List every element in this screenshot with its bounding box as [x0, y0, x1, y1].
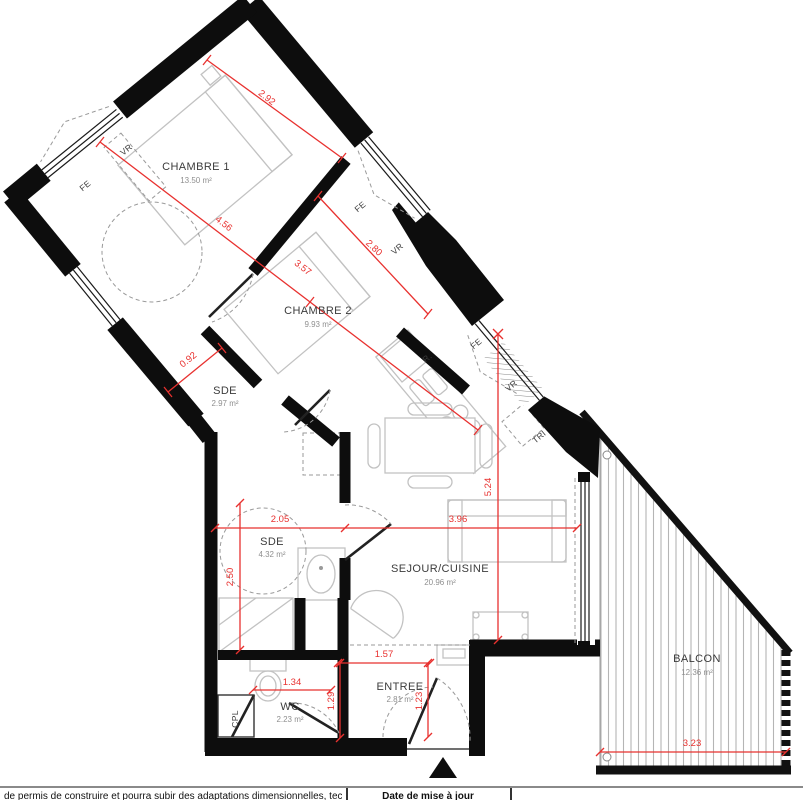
room-wc-name: WC: [280, 701, 299, 713]
room-sde2-name: SDE: [260, 536, 284, 548]
room-sde1-name: SDE: [213, 385, 237, 397]
dim-2-92: 2.92: [256, 88, 277, 108]
window-fe-label-1: FE: [78, 178, 93, 193]
tri-label: TRI: [530, 428, 548, 445]
room-chambre2-name: CHAMBRE 2: [284, 305, 352, 317]
room-sejour-area: 20.96 m²: [424, 578, 456, 587]
room-sejour-name: SEJOUR/CUISINE: [391, 563, 489, 575]
dim-1-29: 1.29: [326, 692, 337, 711]
room-entree-name: ENTREE: [376, 681, 423, 693]
room-entree-area: 2.81 m²: [386, 695, 413, 704]
dim-1-23: 1.23: [414, 692, 425, 711]
balcony: [582, 412, 791, 770]
floor-plan-page: 2.92 4.56 3.57 2.80 0.92 2.05 3.96 5.24 …: [0, 0, 803, 800]
room-balcon-area: 12.36 m²: [681, 668, 713, 677]
window-fe-label-2: FE: [352, 199, 367, 214]
floor-plan-drawing: 2.92 4.56 3.57 2.80 0.92 2.05 3.96 5.24 …: [0, 0, 803, 786]
room-chambre2-area: 9.93 m²: [304, 320, 331, 329]
dim-2-80: 2.80: [363, 238, 384, 259]
footer-bar: de permis de construire et pourra subir …: [0, 786, 803, 800]
room-balcon-name: BALCON: [673, 653, 721, 665]
dim-2-05: 2.05: [271, 514, 290, 525]
dim-0-92: 0.92: [178, 350, 199, 370]
closet-cpl-label: CPL: [230, 710, 240, 727]
room-wc-area: 2.23 m²: [276, 715, 303, 724]
room-sde1-area: 2.97 m²: [211, 399, 238, 408]
room-chambre1-name: CHAMBRE 1: [162, 161, 230, 173]
room-sde2-area: 4.32 m²: [258, 550, 285, 559]
entrance-marker-icon: [429, 757, 457, 778]
dim-5-24: 5.24: [483, 478, 494, 497]
footer-date-label: Date de mise à jour: [348, 791, 508, 800]
footer-note-text: de permis de construire et pourra subir …: [4, 791, 342, 800]
dim-1-34: 1.34: [283, 677, 302, 688]
dim-1-57: 1.57: [375, 649, 394, 660]
dim-3-96: 3.96: [449, 514, 468, 525]
dim-2-50: 2.50: [225, 568, 236, 587]
footer-divider-2: [510, 788, 512, 800]
room-chambre1-area: 13.50 m²: [180, 176, 212, 185]
window-vr-label-2: VR: [389, 241, 405, 257]
dim-3-23: 3.23: [683, 738, 702, 749]
